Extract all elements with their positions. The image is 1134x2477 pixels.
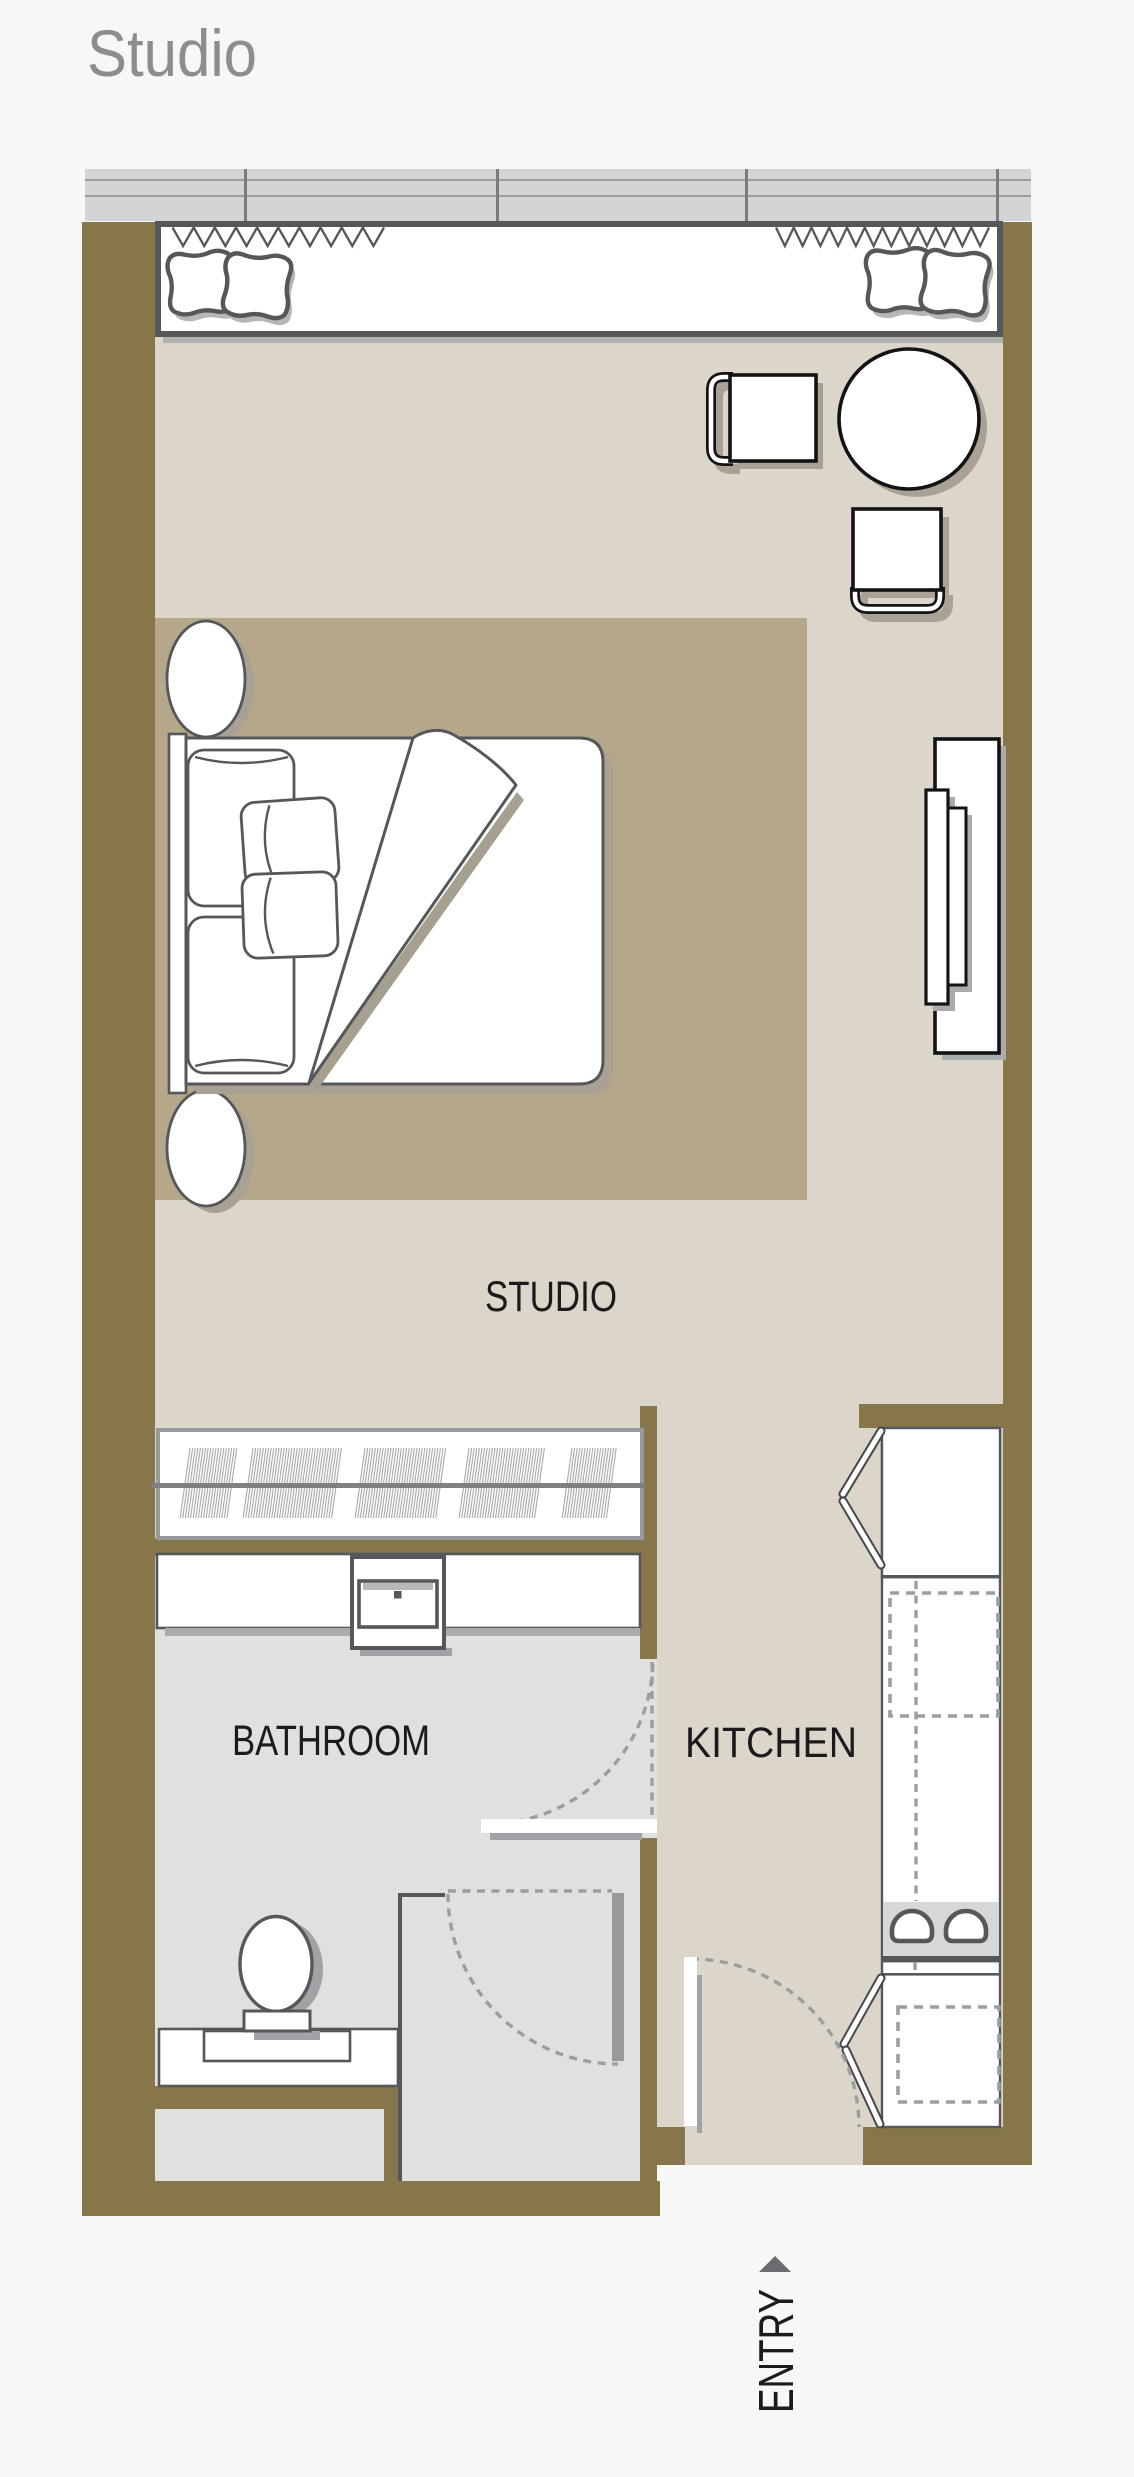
svg-text:BATHROOM: BATHROOM: [232, 1717, 430, 1765]
svg-text:ENTRY: ENTRY: [750, 2289, 804, 2413]
svg-text:STUDIO: STUDIO: [485, 1273, 617, 1321]
svg-text:Studio: Studio: [87, 16, 257, 90]
svg-text:KITCHEN: KITCHEN: [685, 1719, 857, 1767]
